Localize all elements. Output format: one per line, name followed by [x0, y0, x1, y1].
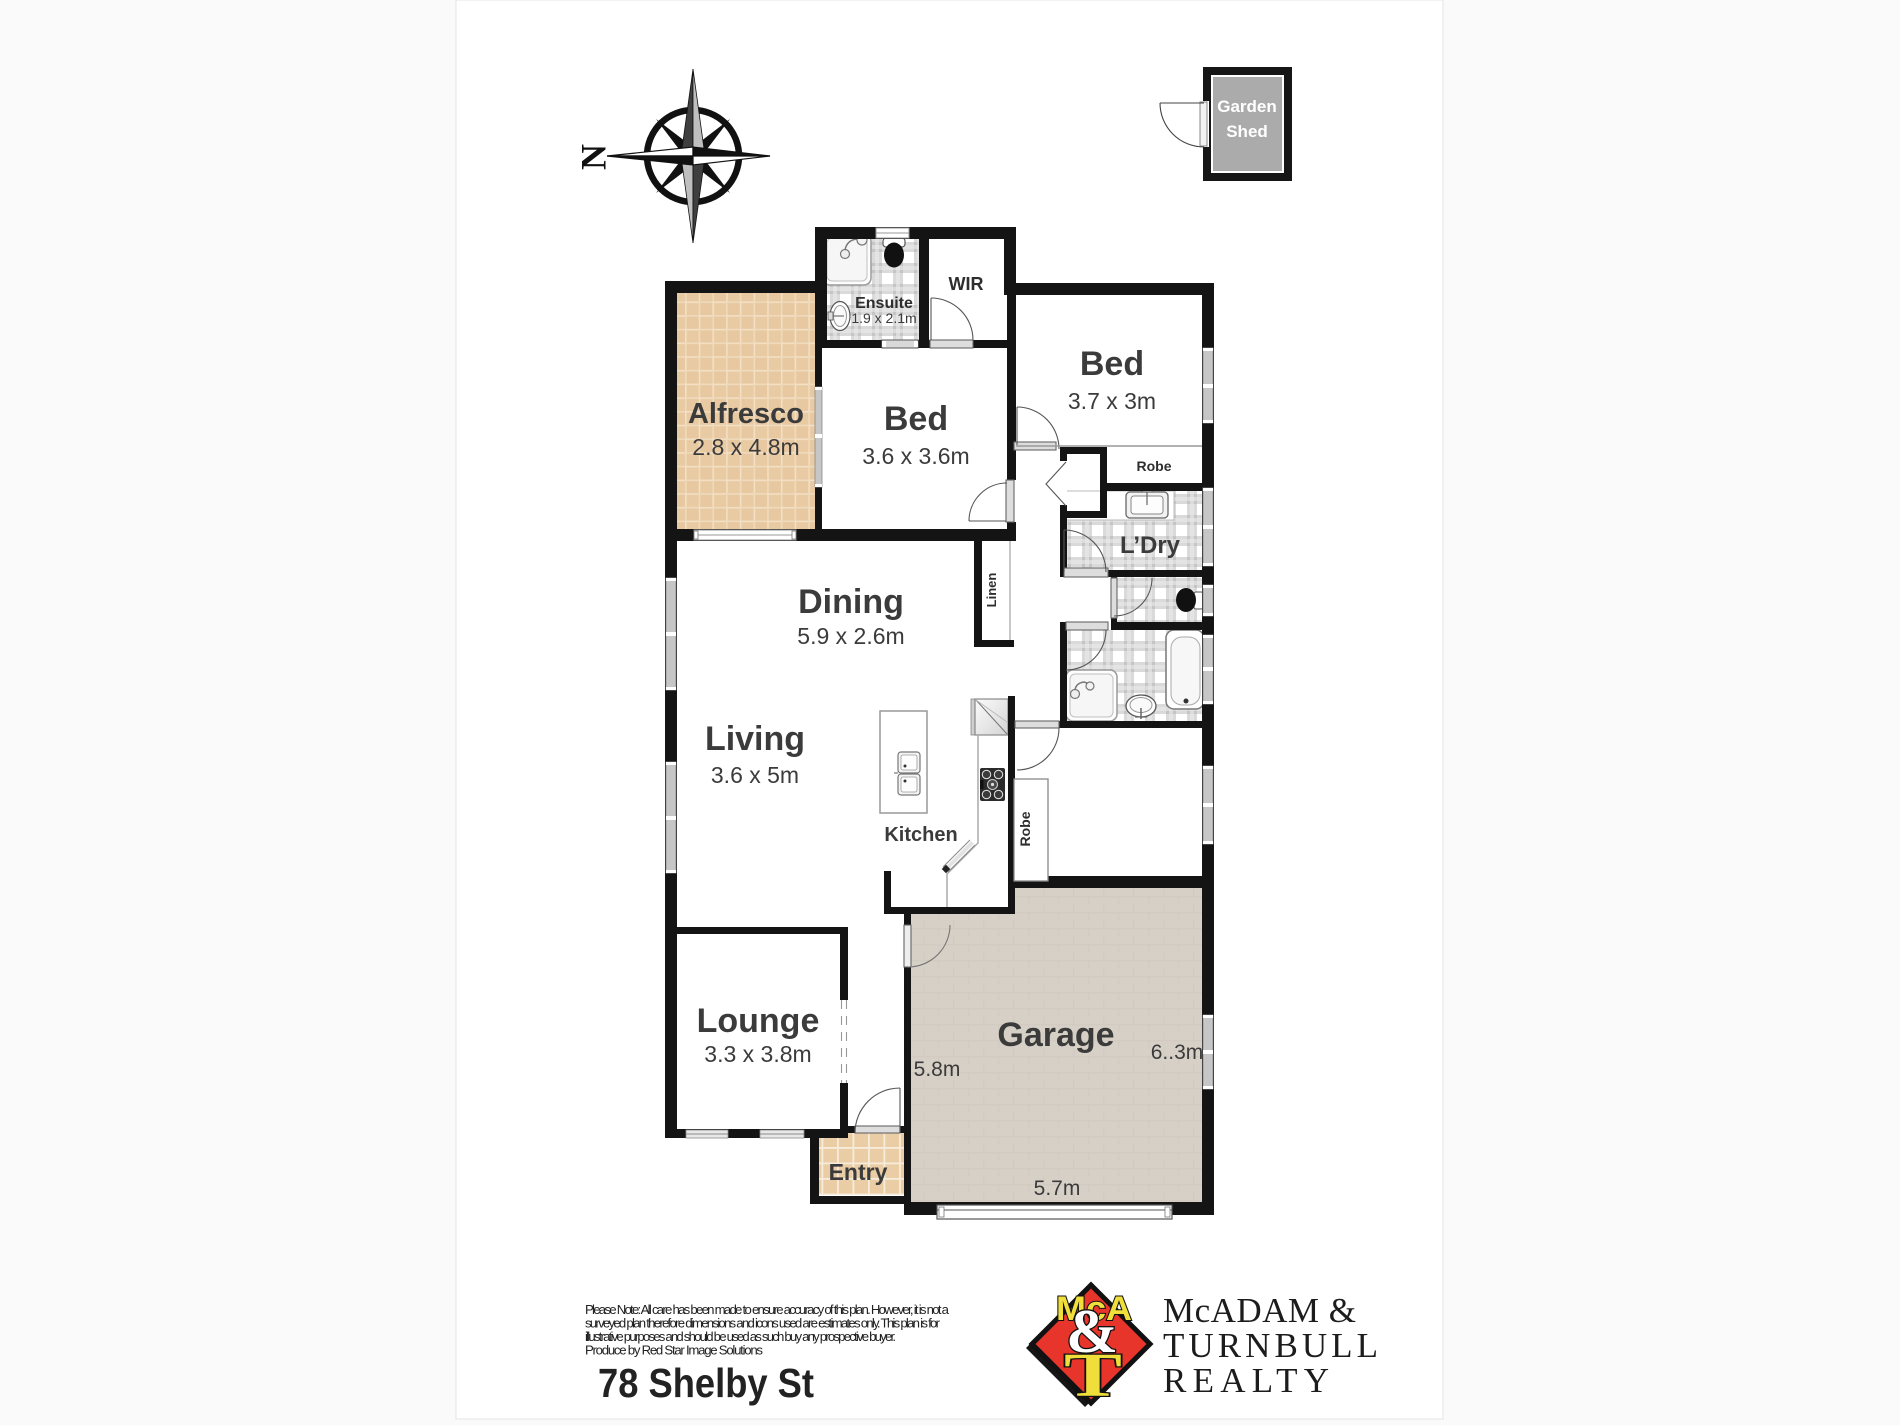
svg-text:WIR: WIR: [949, 274, 984, 294]
svg-text:Living: Living: [705, 720, 805, 758]
svg-text:3.6 x 5m: 3.6 x 5m: [711, 762, 799, 788]
svg-text:L’Dry: L’Dry: [1120, 532, 1181, 559]
svg-text:3.6 x 3.6m: 3.6 x 3.6m: [862, 443, 969, 469]
svg-text:3.3 x 3.8m: 3.3 x 3.8m: [704, 1041, 811, 1067]
svg-text:5.9 x 2.6m: 5.9 x 2.6m: [797, 623, 904, 649]
svg-text:McADAM &: McADAM &: [1163, 1291, 1356, 1330]
svg-text:Garden: Garden: [1217, 97, 1277, 116]
svg-text:3.7 x 3m: 3.7 x 3m: [1068, 388, 1156, 414]
svg-text:Lounge: Lounge: [697, 1002, 820, 1040]
svg-text:Robe: Robe: [1137, 458, 1172, 474]
svg-text:Dining: Dining: [798, 583, 904, 621]
svg-text:6..3m: 6..3m: [1151, 1041, 1204, 1064]
svg-text:Kitchen: Kitchen: [884, 824, 957, 846]
svg-text:Linen: Linen: [984, 573, 999, 608]
svg-text:Robe: Robe: [1017, 811, 1033, 846]
svg-text:5.7m: 5.7m: [1034, 1177, 1081, 1200]
svg-text:Produce by Red Star Image Solu: Produce by Red Star Image Solutions: [585, 1343, 763, 1358]
svg-text:Bed: Bed: [884, 400, 948, 438]
svg-text:Alfresco: Alfresco: [688, 398, 804, 430]
svg-text:78 Shelby St: 78 Shelby St: [598, 1360, 814, 1406]
svg-text:Garage: Garage: [997, 1016, 1114, 1054]
svg-text:Shed: Shed: [1226, 122, 1268, 141]
svg-text:N: N: [573, 144, 613, 170]
svg-text:1.9 x 2.1m: 1.9 x 2.1m: [851, 310, 916, 326]
svg-text:T: T: [1064, 1342, 1122, 1410]
svg-text:Entry: Entry: [829, 1159, 888, 1185]
svg-text:Bed: Bed: [1080, 345, 1144, 383]
svg-text:5.8m: 5.8m: [914, 1058, 961, 1081]
svg-text:2.8 x 4.8m: 2.8 x 4.8m: [692, 434, 799, 460]
